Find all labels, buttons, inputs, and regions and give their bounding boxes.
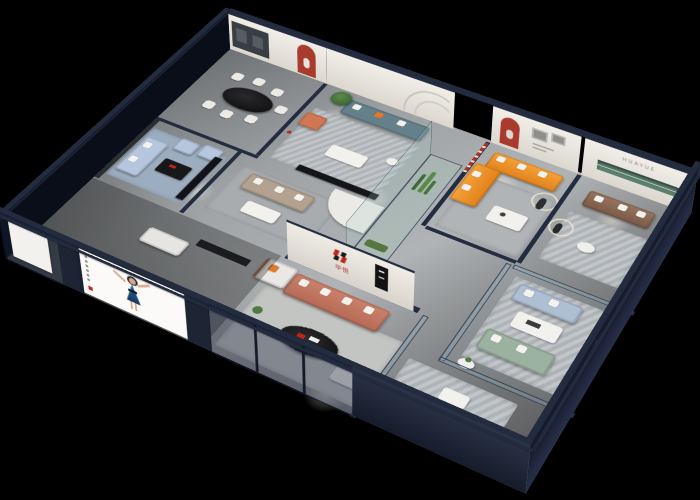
glass-frame-mullion bbox=[302, 345, 306, 394]
tagline-glyph bbox=[87, 278, 90, 281]
poster-woman-leg bbox=[135, 303, 138, 311]
niche-detail bbox=[379, 270, 385, 274]
tagline-glyph bbox=[87, 273, 90, 276]
red-arched-niche bbox=[297, 42, 316, 78]
wall-slogan-illegible bbox=[532, 143, 554, 158]
framed-art bbox=[551, 133, 566, 147]
red-arched-niche bbox=[499, 115, 520, 149]
framed-art bbox=[236, 28, 247, 44]
floor-plan: HUAYUE 华悦 bbox=[7, 48, 692, 494]
poster-woman-leg bbox=[130, 301, 133, 309]
black-display-niche bbox=[375, 264, 388, 292]
render-canvas: { "scene": { "description": "3D isometri… bbox=[0, 0, 700, 500]
logo-bar-black bbox=[333, 255, 339, 261]
niche-figurine bbox=[506, 129, 513, 140]
framed-art bbox=[252, 35, 263, 50]
poster-logo-chip bbox=[88, 286, 93, 292]
poster-vertical-tagline-illegible bbox=[84, 255, 90, 284]
niche-detail bbox=[379, 276, 385, 280]
tagline-glyph bbox=[86, 269, 89, 272]
tagline-glyph bbox=[85, 260, 88, 263]
niche-figurine bbox=[303, 57, 309, 69]
showroom-scene: HUAYUE 华悦 bbox=[0, 0, 700, 500]
logo-bar-red bbox=[340, 257, 347, 264]
framed-art bbox=[531, 127, 548, 143]
poster-woman-arm bbox=[137, 285, 150, 288]
tagline-glyph bbox=[85, 264, 88, 267]
